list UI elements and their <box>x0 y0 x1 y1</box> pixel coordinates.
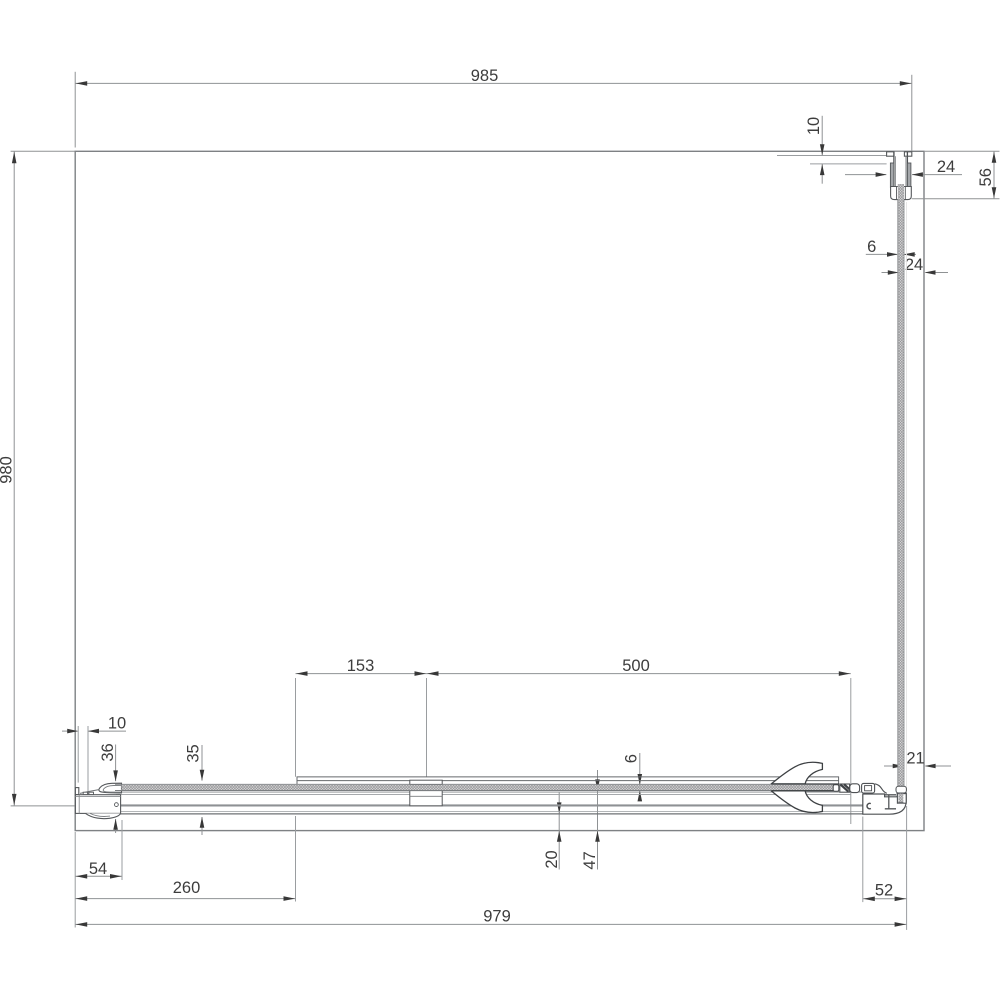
svg-text:35: 35 <box>184 744 202 762</box>
svg-text:24: 24 <box>937 158 955 176</box>
svg-text:260: 260 <box>173 879 201 897</box>
svg-text:6: 6 <box>623 754 641 763</box>
svg-text:36: 36 <box>99 743 117 761</box>
svg-text:153: 153 <box>347 657 375 675</box>
svg-text:980: 980 <box>0 456 16 484</box>
svg-text:56: 56 <box>977 168 995 186</box>
svg-text:985: 985 <box>471 67 499 85</box>
svg-text:10: 10 <box>108 715 126 733</box>
svg-text:500: 500 <box>622 657 650 675</box>
svg-text:54: 54 <box>89 860 107 878</box>
svg-text:6: 6 <box>867 238 876 256</box>
svg-text:20: 20 <box>543 850 561 868</box>
svg-text:47: 47 <box>581 851 599 869</box>
svg-text:21: 21 <box>906 750 924 768</box>
svg-text:24: 24 <box>905 256 923 274</box>
svg-text:979: 979 <box>483 907 511 925</box>
svg-text:10: 10 <box>805 117 823 135</box>
svg-text:52: 52 <box>875 882 893 900</box>
